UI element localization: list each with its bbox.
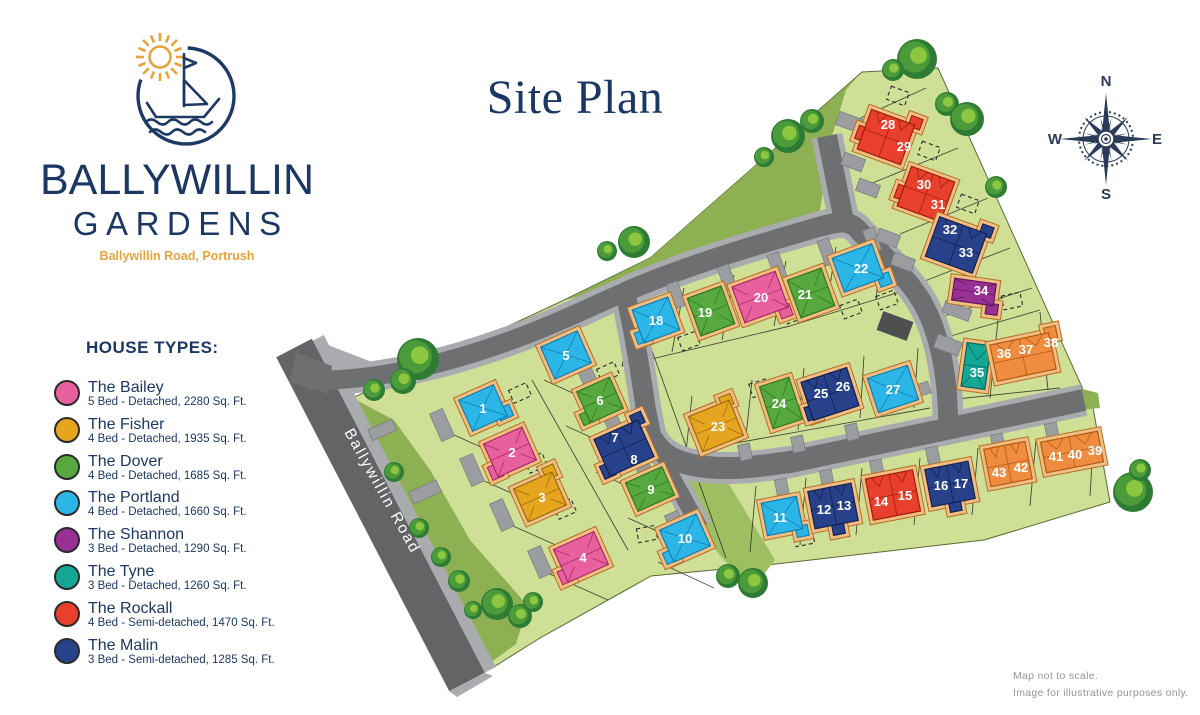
svg-text:9: 9 (647, 482, 654, 497)
svg-text:38: 38 (1044, 335, 1058, 350)
svg-text:12: 12 (817, 502, 831, 517)
svg-text:40: 40 (1068, 447, 1082, 462)
svg-text:1: 1 (479, 401, 486, 416)
svg-text:28: 28 (881, 117, 895, 132)
svg-text:3: 3 (538, 490, 545, 505)
svg-text:13: 13 (837, 498, 851, 513)
svg-text:19: 19 (698, 305, 712, 320)
svg-text:E: E (1152, 131, 1162, 148)
svg-text:31: 31 (931, 197, 945, 212)
svg-text:36: 36 (997, 346, 1011, 361)
svg-text:21: 21 (798, 287, 812, 302)
svg-text:4: 4 (579, 550, 587, 565)
svg-text:8: 8 (630, 452, 637, 467)
svg-text:24: 24 (772, 396, 787, 411)
svg-text:11: 11 (773, 510, 787, 525)
svg-text:14: 14 (874, 494, 889, 509)
svg-text:30: 30 (917, 177, 931, 192)
svg-text:17: 17 (954, 476, 968, 491)
svg-text:15: 15 (898, 488, 912, 503)
svg-text:41: 41 (1049, 449, 1063, 464)
svg-text:39: 39 (1088, 443, 1102, 458)
svg-text:10: 10 (678, 531, 692, 546)
svg-text:5: 5 (562, 348, 569, 363)
svg-text:27: 27 (886, 382, 900, 397)
svg-text:W: W (1048, 131, 1063, 148)
svg-text:22: 22 (854, 261, 868, 276)
svg-text:37: 37 (1019, 342, 1033, 357)
svg-text:7: 7 (611, 430, 618, 445)
svg-text:N: N (1101, 73, 1112, 90)
svg-text:16: 16 (934, 478, 948, 493)
svg-text:34: 34 (974, 283, 989, 298)
svg-text:2: 2 (508, 445, 515, 460)
svg-text:23: 23 (711, 419, 725, 434)
svg-text:35: 35 (970, 365, 984, 380)
svg-text:32: 32 (943, 222, 957, 237)
svg-text:25: 25 (814, 386, 828, 401)
svg-text:18: 18 (649, 313, 663, 328)
svg-text:20: 20 (754, 290, 768, 305)
svg-text:33: 33 (959, 245, 973, 260)
svg-text:6: 6 (596, 393, 603, 408)
svg-text:26: 26 (836, 379, 850, 394)
svg-text:S: S (1101, 186, 1111, 203)
svg-text:29: 29 (897, 139, 911, 154)
svg-text:43: 43 (992, 465, 1006, 480)
svg-text:42: 42 (1014, 460, 1028, 475)
